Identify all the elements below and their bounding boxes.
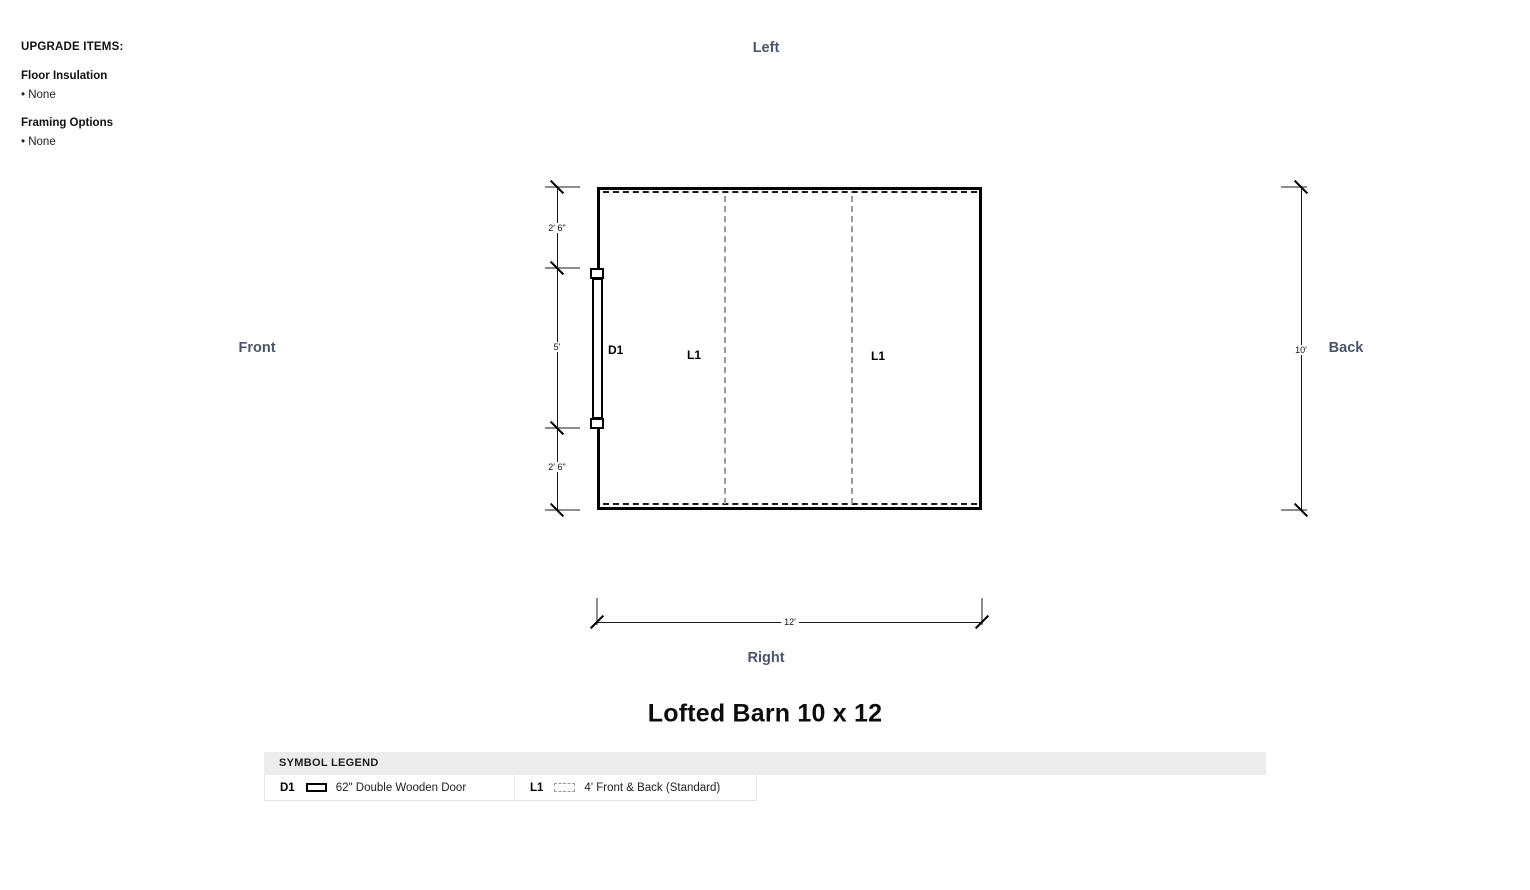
direction-label-back: Back <box>1329 340 1364 356</box>
loft-boundary-line-front <box>724 196 726 504</box>
door-icon <box>306 783 327 792</box>
wall-dashed-line-top <box>603 191 977 193</box>
legend-label-loft: 4' Front & Back (Standard) <box>584 782 720 794</box>
dimension-tick <box>545 186 580 188</box>
legend-header: SYMBOL LEGEND <box>264 752 1266 775</box>
loft-icon <box>554 783 575 792</box>
dimension-tick <box>545 267 580 269</box>
loft-label-front: L1 <box>687 348 701 362</box>
dimension-tick <box>545 427 580 429</box>
direction-label-right: Right <box>747 650 784 666</box>
floor-plan-outline <box>597 187 982 510</box>
direction-label-front: Front <box>238 340 275 356</box>
wall-dashed-line-bottom <box>603 503 977 505</box>
upgrade-section-value-framing-options: • None <box>21 136 56 148</box>
legend-row: D1 62" Double Wooden Door L1 4' Front & … <box>264 775 757 801</box>
dimension-label-left-middle: 5' <box>551 342 564 352</box>
upgrade-section-heading-floor-insulation: Floor Insulation <box>21 70 107 82</box>
dimension-label-left-bottom: 2' 6" <box>545 462 568 472</box>
loft-boundary-line-back <box>851 196 853 504</box>
legend-code-loft: L1 <box>530 782 543 794</box>
dimension-label-bottom: 12' <box>781 617 799 627</box>
dimension-tick <box>545 509 580 511</box>
upgrade-items-title: UPGRADE ITEMS: <box>21 41 123 53</box>
page-title: Lofted Barn 10 x 12 <box>648 700 882 729</box>
door-symbol <box>592 278 603 419</box>
legend-item-door: D1 62" Double Wooden Door <box>264 775 515 801</box>
loft-label-back: L1 <box>871 349 885 363</box>
door-label: D1 <box>608 343 623 357</box>
upgrade-section-value-floor-insulation: • None <box>21 89 56 101</box>
upgrade-section-heading-framing-options: Framing Options <box>21 117 113 129</box>
legend-code-door: D1 <box>280 782 295 794</box>
dimension-label-right: 10' <box>1292 345 1310 355</box>
door-symbol-jamb-bottom <box>590 418 604 429</box>
legend-label-door: 62" Double Wooden Door <box>336 782 466 794</box>
dimension-label-left-top: 2' 6" <box>545 223 568 233</box>
direction-label-left: Left <box>753 40 780 56</box>
legend-item-loft: L1 4' Front & Back (Standard) <box>515 775 757 801</box>
